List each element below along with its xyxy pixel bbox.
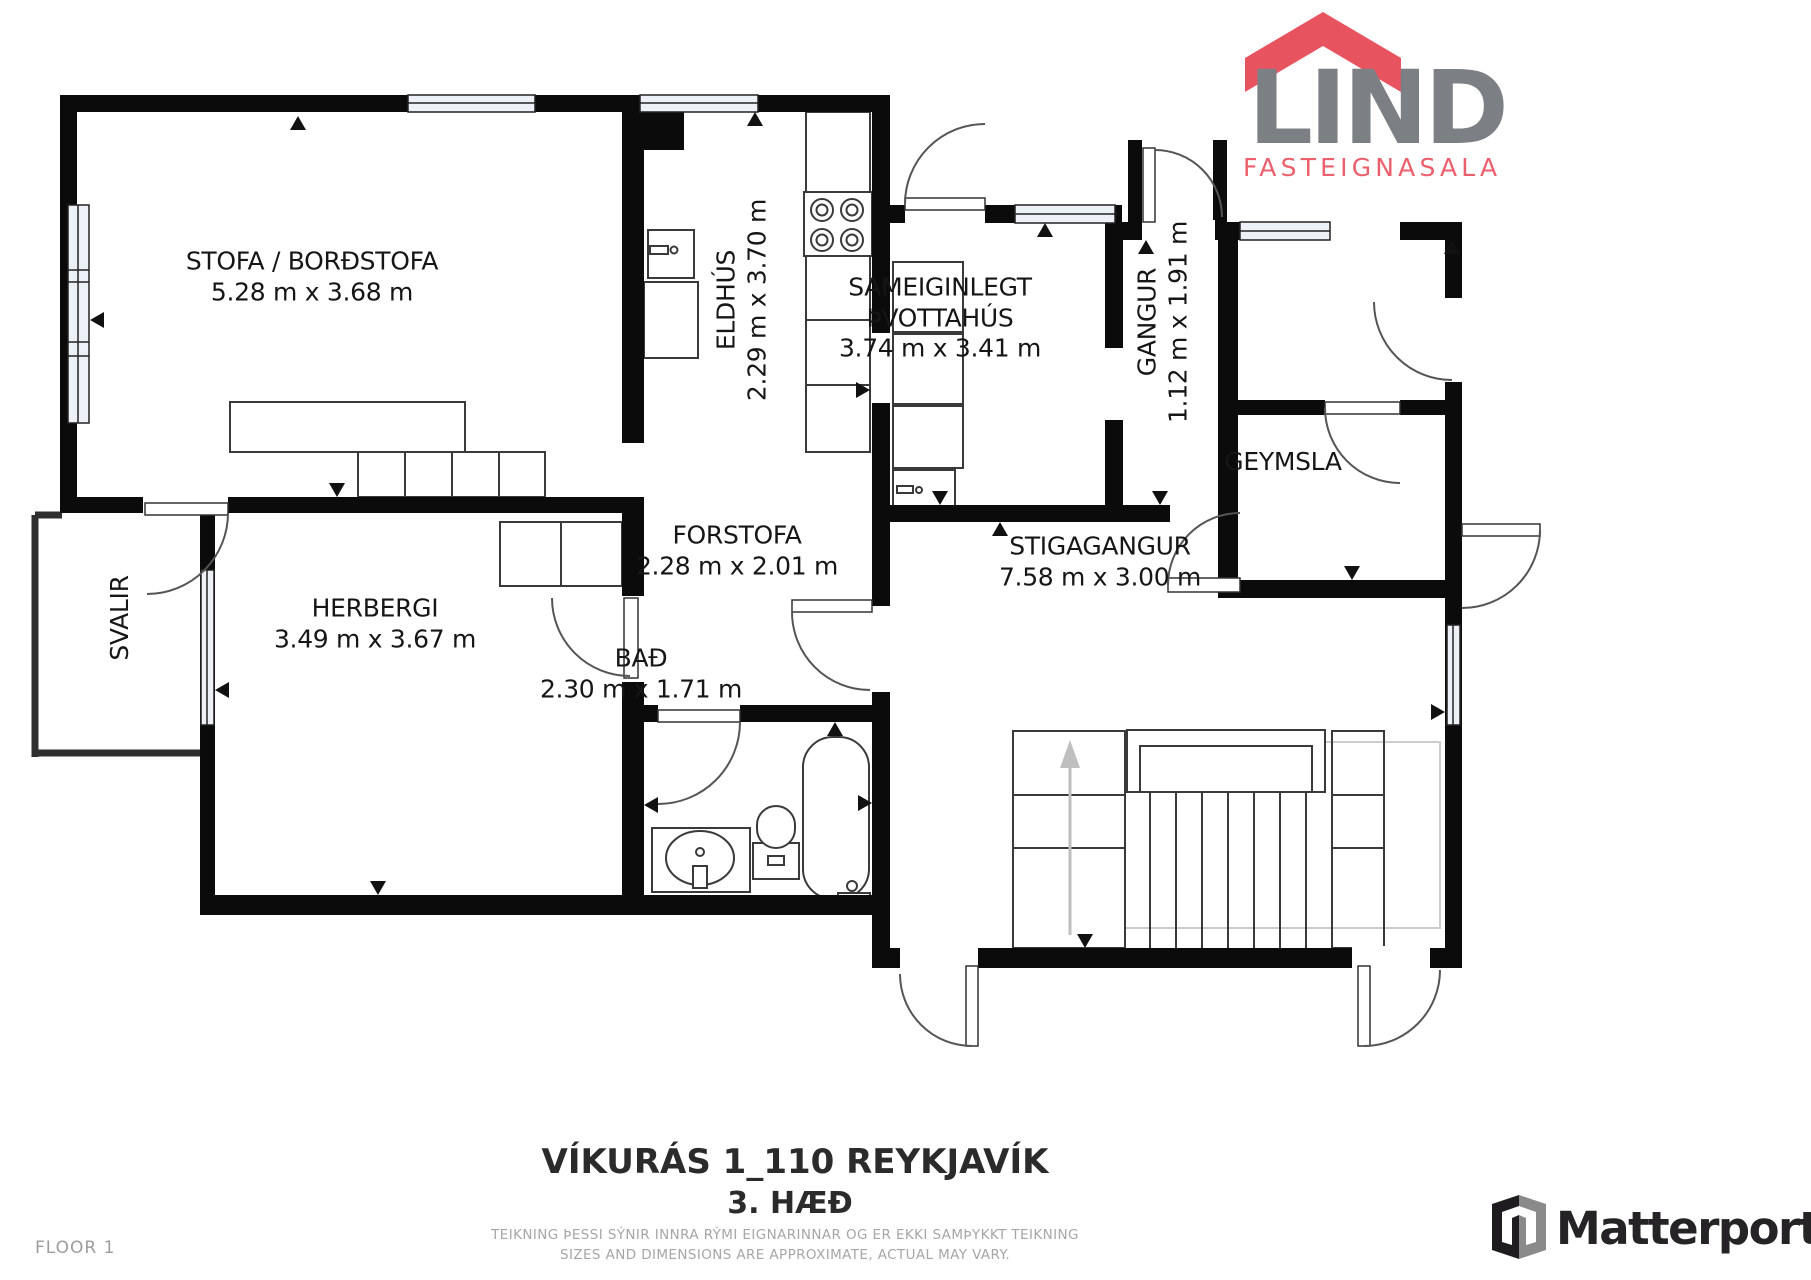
room-dims: 5.28 m x 3.68 m — [186, 277, 438, 308]
disclaimer-line2: SIZES AND DIMENSIONS ARE APPROXIMATE, AC… — [560, 1247, 1010, 1263]
room-name: STIGAGANGUR — [999, 532, 1201, 563]
room-name: GEYMSLA — [1224, 447, 1341, 478]
room-dims: 1.12 m x 1.91 m — [1163, 221, 1194, 423]
room-name: BAÐ — [540, 644, 742, 675]
floorplan-drawing — [0, 0, 1811, 1280]
lind-logo-text: LIND — [1248, 58, 1505, 160]
room-label-geymsla: GEYMSLA — [1224, 447, 1341, 478]
room-label-gangur: GANGUR 1.12 m x 1.91 m — [1133, 221, 1194, 423]
room-label-forstofa: FORSTOFA 2.28 m x 2.01 m — [636, 521, 838, 582]
room-label-svalir: SVALIR — [105, 575, 136, 660]
room-name: STOFA / BORÐSTOFA — [186, 247, 438, 278]
room-dims: 3.49 m x 3.67 m — [274, 624, 476, 655]
room-label-herbergi: HERBERGI 3.49 m x 3.67 m — [274, 594, 476, 655]
room-name-line2: ÞVOTTAHÚS — [839, 303, 1041, 334]
room-label-stofa: STOFA / BORÐSTOFA 5.28 m x 3.68 m — [186, 247, 438, 308]
room-name: HERBERGI — [274, 594, 476, 625]
room-label-stigagangur: STIGAGANGUR 7.58 m x 3.00 m — [999, 532, 1201, 593]
room-name: FORSTOFA — [636, 521, 838, 552]
matterport-icon — [1490, 1194, 1548, 1260]
room-label-thvottahus: SAMEIGINLEGT ÞVOTTAHÚS 3.74 m x 3.41 m — [839, 272, 1041, 364]
room-dims: 2.30 m x 1.71 m — [540, 674, 742, 705]
floor-indicator: FLOOR 1 — [35, 1238, 115, 1258]
address-title: VÍKURÁS 1_110 REYKJAVÍK — [542, 1142, 1049, 1182]
room-dims: 2.28 m x 2.01 m — [636, 551, 838, 582]
staircase — [1013, 730, 1384, 948]
room-label-eldhus: ELDHÚS 2.29 m x 3.70 m — [712, 199, 773, 401]
floor-title: 3. HÆÐ — [727, 1186, 853, 1221]
lind-tagline: FASTEIGNASALA — [1243, 153, 1501, 182]
matterport-wordmark: Matterport — [1556, 1202, 1811, 1255]
room-dims: 7.58 m x 3.00 m — [999, 562, 1201, 593]
floorplan-page: STOFA / BORÐSTOFA 5.28 m x 3.68 m ELDHÚS… — [0, 0, 1811, 1280]
room-name: SVALIR — [105, 575, 136, 660]
room-name: GANGUR — [1133, 221, 1164, 423]
room-name-line1: SAMEIGINLEGT — [839, 272, 1041, 303]
disclaimer-line1: TEIKNING ÞESSI SÝNIR INNRA RÝMI EIGNARIN… — [491, 1227, 1079, 1243]
room-label-bad: BAÐ 2.30 m x 1.71 m — [540, 644, 742, 705]
room-name: ELDHÚS — [712, 199, 743, 401]
room-dims: 2.29 m x 3.70 m — [742, 199, 773, 401]
room-dims: 3.74 m x 3.41 m — [839, 333, 1041, 364]
